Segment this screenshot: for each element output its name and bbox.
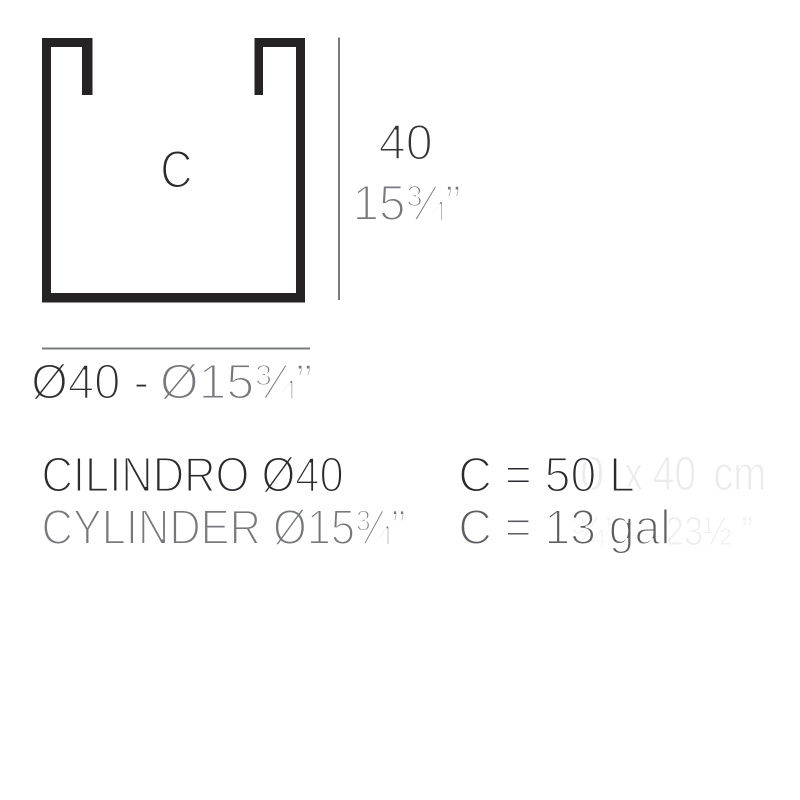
svg-text:CYLINDER Ø15¾”: CYLINDER Ø15¾”	[42, 499, 406, 554]
svg-text:C: C	[160, 141, 192, 199]
svg-text:Ø15¾”: Ø15¾”	[160, 354, 312, 410]
svg-text:C = 50 L: C = 50 L	[458, 448, 634, 503]
svg-text:Ø40 -: Ø40 -	[31, 355, 149, 410]
svg-text:CILINDRO Ø40: CILINDRO Ø40	[42, 447, 344, 502]
svg-text:cm: cm	[713, 447, 766, 501]
svg-text:23½: 23½	[665, 509, 732, 554]
svg-text:”: ”	[742, 509, 753, 554]
svg-text:C = 13 gal: C = 13 gal	[458, 501, 670, 556]
svg-text:15¾”: 15¾”	[353, 176, 461, 231]
svg-text:40: 40	[379, 115, 433, 171]
svg-text:40: 40	[653, 447, 697, 501]
